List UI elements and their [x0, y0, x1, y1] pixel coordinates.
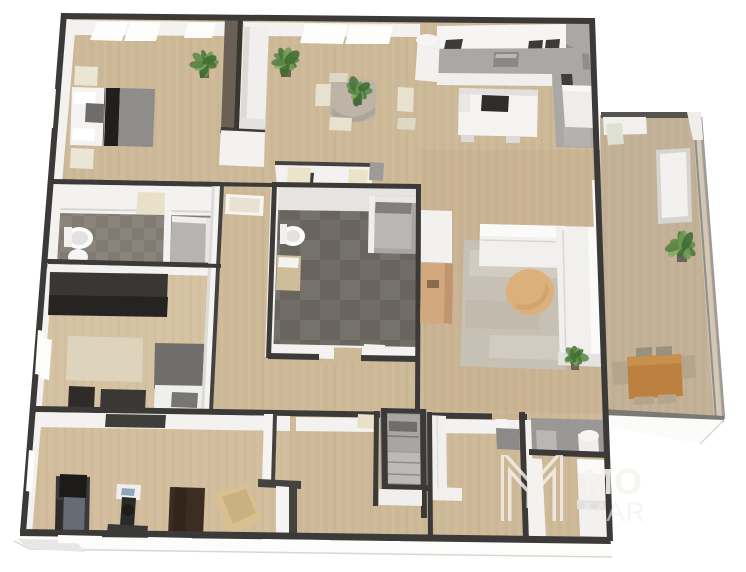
- svg-text:MAR: MAR: [583, 497, 646, 527]
- svg-text:MO: MO: [583, 461, 643, 502]
